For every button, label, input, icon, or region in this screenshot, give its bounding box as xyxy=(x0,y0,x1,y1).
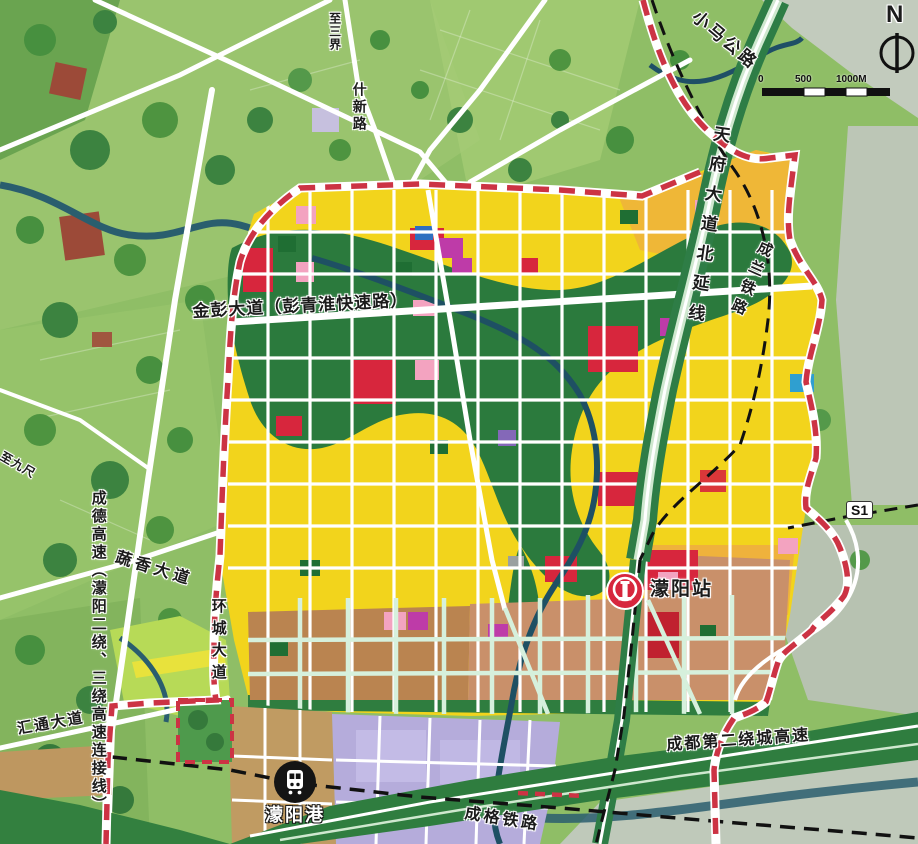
scale-end: 1000M xyxy=(836,74,867,85)
railway-station-icon xyxy=(607,573,643,609)
planning-map: 小马公路 天府大道北延线 成兰铁路 什新路 至三界 至九尺 金彭大道（彭青淮快速… xyxy=(0,0,918,844)
label-mengyang-station: 濛阳站 xyxy=(650,580,713,600)
label-shixin-road: 什新路 xyxy=(352,82,367,133)
scale-bar xyxy=(762,88,890,96)
scale-mid: 500 xyxy=(795,74,812,85)
label-chengde-expressway: 成德高速（濛阳二绕、三绕高速连接线） xyxy=(90,490,106,814)
label-huancheng-avenue: 环城大道 xyxy=(210,598,226,686)
scale-start: 0 xyxy=(758,74,764,85)
compass-north-label: N xyxy=(886,2,903,27)
map-canvas xyxy=(0,0,918,844)
label-mengyang-port: 濛阳港 xyxy=(265,806,325,825)
port-icon xyxy=(274,761,316,803)
label-s1-line: S1 xyxy=(846,501,873,519)
label-zhi-sanjie: 至三界 xyxy=(328,12,341,51)
